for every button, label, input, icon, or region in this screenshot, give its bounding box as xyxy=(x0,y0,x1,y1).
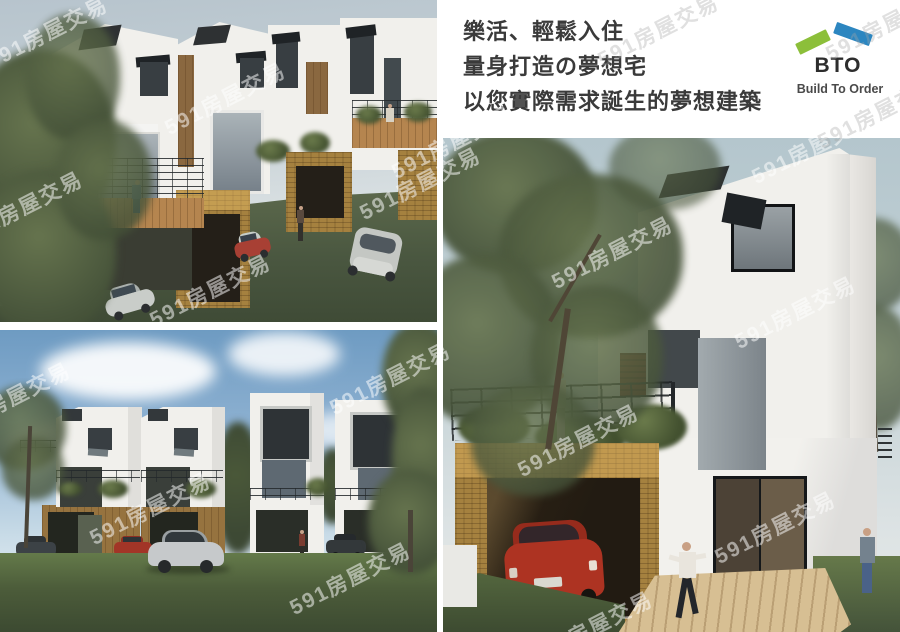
window xyxy=(140,62,168,96)
glass-panel xyxy=(698,338,766,470)
person-body xyxy=(297,210,304,223)
brick-pier xyxy=(398,150,437,220)
window xyxy=(174,428,198,450)
planter xyxy=(256,140,290,162)
headline-line-2: 量身打造の夢想宅 xyxy=(463,49,762,84)
tree-foliage xyxy=(471,384,595,496)
awning-flap xyxy=(174,448,194,456)
person xyxy=(295,206,307,244)
photo-main-house xyxy=(443,138,900,632)
window xyxy=(260,406,312,462)
carport-door xyxy=(78,515,102,553)
person-head xyxy=(863,528,871,536)
window xyxy=(88,428,112,450)
cloud xyxy=(40,342,216,400)
logo-name: BTO xyxy=(788,54,888,78)
person xyxy=(853,526,881,596)
planter xyxy=(404,102,432,122)
headline-line-1: 樂活、輕鬆入住 xyxy=(463,14,762,49)
car-taillight xyxy=(589,560,598,571)
car-wheel xyxy=(259,249,268,258)
planter xyxy=(356,106,382,124)
headline-line-3: 以您實際需求誕生的夢想建築 xyxy=(463,84,762,119)
planter xyxy=(98,480,128,498)
person-arm xyxy=(694,553,707,560)
skylight xyxy=(193,25,231,46)
car-taillight xyxy=(509,568,518,579)
car-wheel xyxy=(200,560,213,573)
tree-foliage xyxy=(2,438,64,500)
window xyxy=(276,38,298,88)
planter xyxy=(186,480,216,498)
planter xyxy=(306,478,330,496)
garden-wall xyxy=(443,545,477,607)
person-body xyxy=(386,108,394,122)
car xyxy=(228,222,275,267)
logo-tagline: Build To Order xyxy=(778,82,900,96)
bto-logo: BTO Build To Order xyxy=(780,20,900,112)
tree-trunk xyxy=(408,510,413,572)
car-body xyxy=(326,540,366,554)
logo-roof-green-icon xyxy=(795,29,831,55)
car xyxy=(146,528,230,578)
cloud xyxy=(228,332,340,376)
person-legs xyxy=(862,563,872,593)
person-legs xyxy=(298,223,303,241)
person-head xyxy=(682,542,691,551)
tree-foliage xyxy=(368,470,437,574)
window xyxy=(350,32,374,94)
wall-shade xyxy=(128,407,142,507)
window xyxy=(240,58,264,88)
car-wheel xyxy=(158,560,171,573)
person-body xyxy=(299,534,305,546)
slat-stair xyxy=(178,55,194,167)
skylight xyxy=(148,409,168,421)
person xyxy=(384,104,396,126)
awning-flap xyxy=(88,448,108,456)
photo-terrace-view xyxy=(0,0,437,322)
person xyxy=(669,542,705,622)
car-wheel xyxy=(240,253,249,262)
logo-roof-blue-icon xyxy=(833,22,873,46)
louver-vent xyxy=(878,428,892,462)
planter xyxy=(300,132,330,154)
photo-front-view xyxy=(0,330,437,632)
tree-foliage xyxy=(56,120,152,240)
listing-flyer: 樂活、輕鬆入住 量身打造の夢想宅 以您實際需求誕生的夢想建築 BTO Build… xyxy=(0,0,900,632)
headline: 樂活、輕鬆入住 量身打造の夢想宅 以您實際需求誕生的夢想建築 xyxy=(463,14,762,119)
person-body xyxy=(860,537,875,563)
railing xyxy=(56,470,140,482)
railing xyxy=(141,470,223,482)
person-leg xyxy=(685,578,698,614)
planter xyxy=(58,482,82,496)
slat-door xyxy=(306,62,328,114)
